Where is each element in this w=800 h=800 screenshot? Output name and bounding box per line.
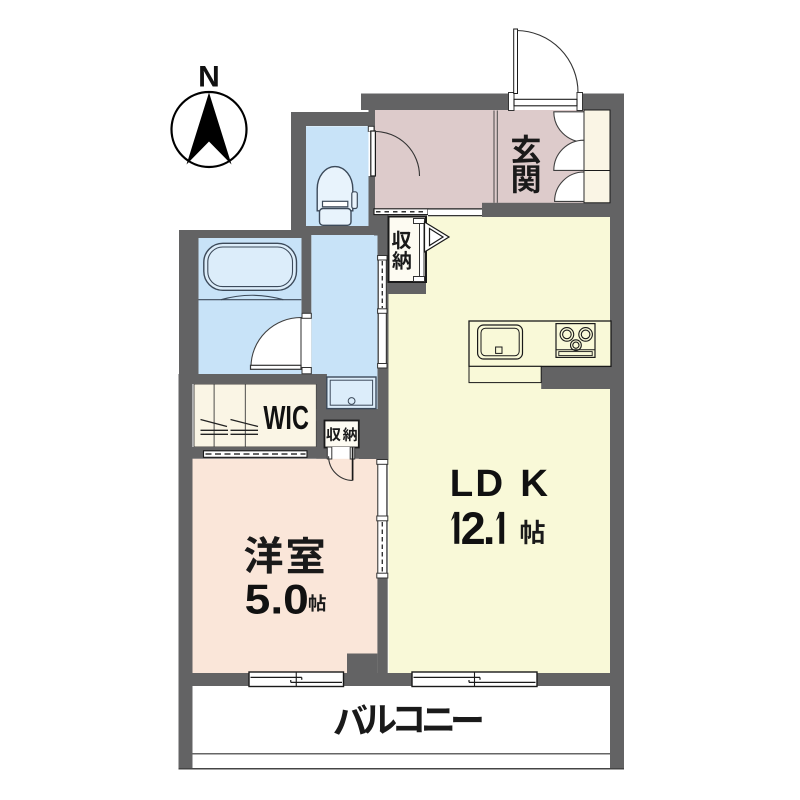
svg-text:WIC: WIC xyxy=(263,400,309,437)
svg-text:5.0: 5.0 xyxy=(245,576,309,623)
svg-text:L: L xyxy=(450,462,473,505)
svg-text:.: . xyxy=(483,503,496,554)
svg-text:N: N xyxy=(198,61,220,94)
svg-text:K: K xyxy=(520,462,548,505)
svg-text:D: D xyxy=(475,462,503,505)
